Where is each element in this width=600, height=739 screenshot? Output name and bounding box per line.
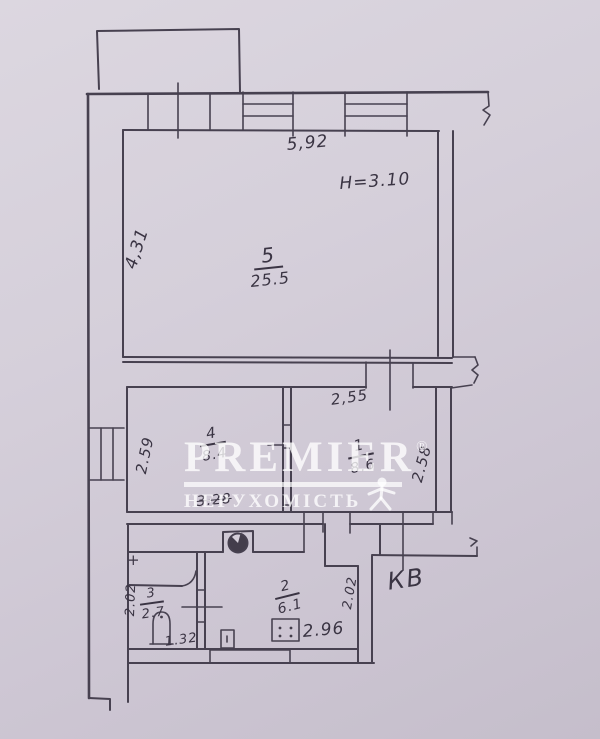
vent-shaft	[223, 531, 253, 553]
registered-trademark-icon: ®	[416, 439, 427, 455]
entry-boundary	[372, 524, 477, 556]
right-wall	[436, 131, 478, 512]
watermark-subtitle-row: НЕРУХОМІСТЬ	[184, 491, 416, 511]
agency-watermark: PREMIER® НЕРУХОМІСТЬ	[184, 436, 416, 511]
watermark-person-icon	[366, 477, 396, 511]
room5-number: 5	[252, 244, 283, 271]
dim-bath-left: 2.02	[124, 583, 138, 616]
sink-icon	[221, 630, 234, 648]
room3-area: 2.7	[140, 602, 166, 621]
dim-top-width: 5,92	[286, 133, 329, 154]
top-wall	[87, 83, 490, 138]
room5-label: 5 25.5	[247, 243, 291, 290]
left-wall	[88, 94, 128, 710]
room5-area: 25.5	[249, 267, 290, 290]
watermark-brand-row: PREMIER®	[184, 436, 416, 479]
top-wall-windows	[243, 104, 407, 116]
dim-kitchen-width: 2.96	[302, 620, 345, 641]
room5-walls	[123, 350, 452, 410]
room3-label: 3 2.7	[138, 585, 167, 621]
left-wall-window	[89, 428, 124, 480]
floor-plan: 5,92 H=3.10 4,31 2.59 2,55 2.58 3.28 2.9…	[0, 0, 600, 739]
kv-annotation: КВ	[386, 565, 426, 594]
chimney-projection	[97, 29, 240, 92]
middle-bottom-wall	[127, 512, 452, 570]
watermark-brand-text: PREMIER	[184, 434, 415, 481]
stove-icon	[272, 619, 299, 641]
plus-mark: +	[127, 553, 141, 568]
ceiling-height-note: H=3.10	[339, 171, 411, 193]
floor-plan-drawing	[0, 0, 600, 739]
watermark-subtitle-text: НЕРУХОМІСТЬ	[184, 492, 361, 511]
